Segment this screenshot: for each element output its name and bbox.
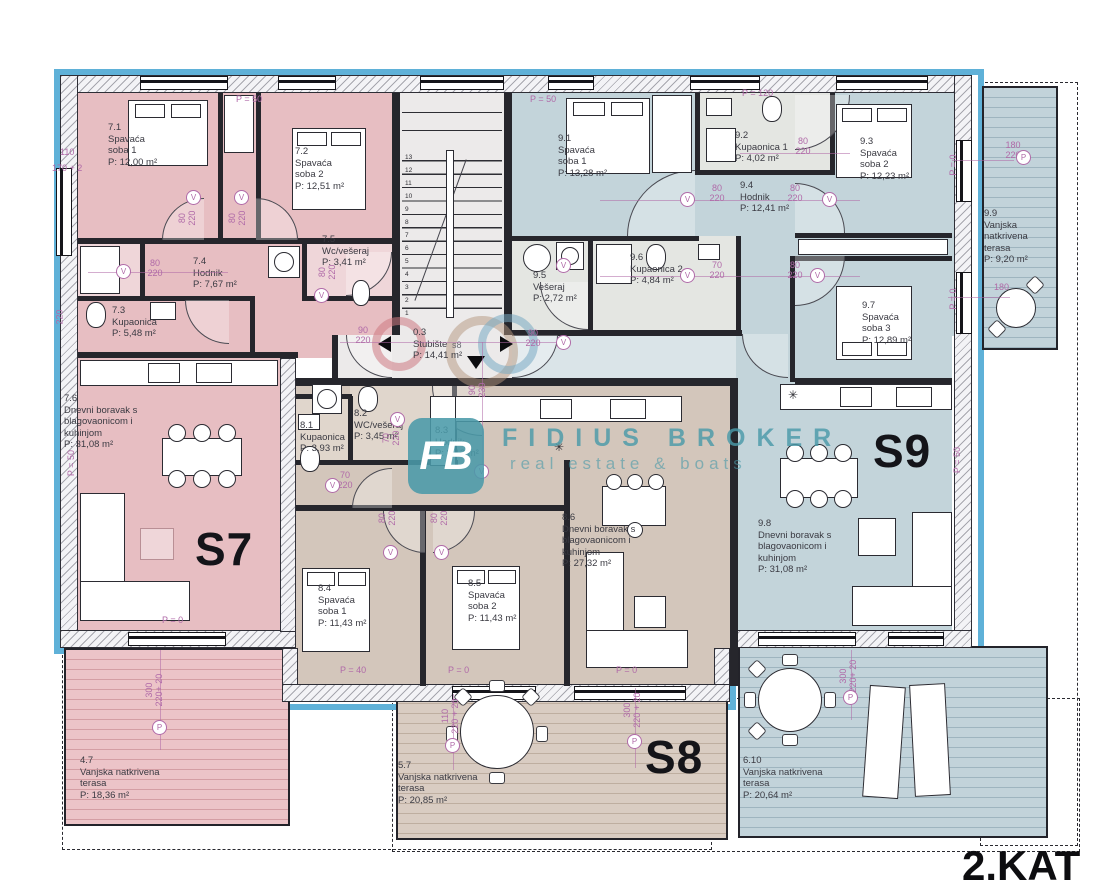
- dim-label: 80 220: [702, 183, 732, 203]
- stair-number: 1: [405, 310, 409, 317]
- terrace-table-6-10: [758, 668, 822, 732]
- wall-7-6-top: [78, 352, 298, 358]
- p-marker: P: [1016, 150, 1031, 165]
- vent-marker: V: [556, 258, 571, 273]
- p-marker: P: [152, 720, 167, 735]
- sofa-9-8-horizontal: [852, 586, 952, 626]
- dim-label: 300 220+ 20: [144, 664, 164, 716]
- stair-number: 11: [405, 180, 412, 187]
- dim-label: 80 220: [140, 258, 170, 278]
- stair-number: 13: [405, 154, 412, 161]
- chair: [648, 474, 664, 490]
- room-label-9-2: 9.2Kupaonica 1P: 4,02 m²: [735, 130, 788, 165]
- vent-marker: V: [234, 190, 249, 205]
- wall-s8-top: [296, 378, 738, 386]
- closet-9-3-9-7: [798, 239, 948, 255]
- dim-label: P = 0: [948, 282, 958, 316]
- coffee-table-8-6: [634, 596, 666, 628]
- room-label-7-4: 7.4HodnikP: 7,67 m²: [193, 256, 237, 291]
- window-top-1: [140, 76, 228, 90]
- wall-9-1-bottom: [512, 236, 699, 241]
- dim-label: 80 220: [177, 203, 197, 233]
- dim-label: 170 + 2: [52, 163, 82, 173]
- dim-label: 80 220: [780, 183, 810, 203]
- vent-marker: V: [116, 264, 131, 279]
- wall-left: [60, 75, 78, 648]
- dim-label: P = 0: [448, 665, 469, 675]
- chair: [193, 470, 211, 488]
- dim-label: P = 50: [530, 94, 556, 104]
- window-bottom-s7: [128, 632, 226, 646]
- terrace-chair: [489, 680, 505, 692]
- wall-7-1-right: [218, 93, 223, 240]
- floor-plan-canvas: 1 2 3 4 5 6 7 8 9 10 11 12 13 s8: [0, 0, 1105, 896]
- dim-label: 80 220: [780, 260, 810, 280]
- terrace-chair: [536, 726, 548, 742]
- room-label-8-4: 8.4Spavaćasoba 1P: 11,43 m²: [318, 583, 366, 629]
- dim-label: 70 220: [702, 260, 732, 280]
- kitchen-stove-9-8: [896, 387, 932, 407]
- terrace-chair: [489, 772, 505, 784]
- room-label-8-1: 8.1KupaonicaP: 3,93 m²: [300, 420, 345, 455]
- washer-drum-7-5: [274, 252, 294, 272]
- vent-marker: V: [680, 192, 695, 207]
- fidius-broker-logo-tagline: real estate & boats: [510, 454, 747, 474]
- p-marker: P: [445, 738, 460, 753]
- wall-9-1-right: [695, 93, 700, 175]
- chair: [627, 474, 643, 490]
- dim-label: P = 0: [616, 665, 637, 675]
- chair: [168, 470, 186, 488]
- dim-label: 110: [60, 147, 74, 157]
- window-top-5: [836, 76, 928, 90]
- terrace-chair: [782, 734, 798, 746]
- shower-9-6: [596, 244, 632, 284]
- terrace-chair: [744, 692, 756, 708]
- dim-label: 90 220: [518, 328, 548, 348]
- wall-9-3-bottom: [795, 233, 952, 238]
- dim-label: P = 0: [162, 615, 183, 625]
- window-bottom-9-8a: [758, 632, 856, 646]
- vent-marker: V: [314, 288, 329, 303]
- wall-s8-left: [282, 648, 298, 688]
- terrace-table-9-9: [996, 288, 1036, 328]
- toilet-9-2: [762, 96, 782, 122]
- dim-label: 80 220: [429, 503, 449, 533]
- dim-label: 90 230: [467, 375, 487, 405]
- room-label-9-5: 9.5VešerajP: 2,72 m²: [533, 270, 577, 305]
- entry-arrow-s9: [500, 336, 513, 352]
- dim-label: 80 220: [227, 203, 247, 233]
- floor-label: 2.KAT: [962, 842, 1080, 890]
- window-right-1: [956, 140, 972, 202]
- vent-marker: V: [383, 545, 398, 560]
- vent-marker: V: [186, 190, 201, 205]
- terrace-chair: [782, 654, 798, 666]
- stair-number: 12: [405, 167, 412, 174]
- window-top-stair: [420, 76, 504, 90]
- p-marker: P: [843, 690, 858, 705]
- window-right-2: [956, 272, 972, 334]
- coffee-table-s7: [140, 528, 174, 560]
- window-left-1: [56, 168, 72, 256]
- chair: [810, 490, 828, 508]
- wall-stair-left: [392, 93, 400, 335]
- dim-label: 90 220: [348, 325, 378, 345]
- stair-number: 8: [405, 219, 409, 226]
- wall-8-5-8-6-divider: [564, 460, 570, 686]
- vent-marker: V: [390, 412, 405, 427]
- dim-label: P = 50: [66, 444, 76, 482]
- lounger-6-10-b: [909, 683, 951, 797]
- stair-number: 2: [405, 297, 409, 304]
- stair-number: 9: [405, 206, 409, 213]
- wall-9-5-9-6-divider: [588, 236, 593, 335]
- room-label-8-5: 8.5Spavaćasoba 2P: 11,43 m²: [468, 578, 516, 624]
- room-label-8-6: 8.6Dnevni boravak sblagovaonicom ikuhinj…: [562, 512, 635, 570]
- washer-9-2: [706, 128, 736, 162]
- dim-label: P = 120: [742, 88, 773, 98]
- wall-s7-s8-divider: [280, 358, 296, 632]
- light-symbol: ✳: [788, 388, 798, 402]
- kitchen-sink-8-6: [540, 399, 572, 419]
- toilet-7-3: [86, 302, 106, 328]
- vent-marker: V: [680, 268, 695, 283]
- wall-vestibule-left: [332, 335, 338, 378]
- wall-7-3-right: [250, 296, 255, 356]
- room-label-9-7: 9.7Spavaćasoba 3P: 12,89 m²: [862, 300, 911, 346]
- closet-9-1: [652, 95, 692, 173]
- room-label-9-8: 9.8Dnevni boravak sblagovaonicom ikuhinj…: [758, 518, 831, 576]
- shower-7-3: [80, 246, 120, 294]
- room-label-7-2: 7.2Spavaćasoba 2P: 12,51 m²: [295, 146, 344, 192]
- kitchen-sink-9-8: [840, 387, 872, 407]
- stair-number: 7: [405, 232, 409, 239]
- room-label-9-1: 9.1Spavaćasoba 1P: 13,28 m²: [558, 133, 607, 179]
- stair-number: 3: [405, 284, 409, 291]
- p-marker: P: [627, 734, 642, 749]
- toilet-7-5: [352, 280, 370, 306]
- washer-drum-8-2: [317, 389, 337, 409]
- room-label-7-3: 7.3KupaonicaP: 5,48 m²: [112, 305, 157, 340]
- room-label-7-6: 7.6Dnevni boravak sblagovaonicom ikuhinj…: [64, 393, 137, 451]
- chair: [218, 470, 236, 488]
- fidius-broker-logo-name: FIDIUS BROKER: [502, 424, 842, 453]
- room-label-stairwell: 0.3StubišteP: 14,41 m²: [413, 327, 462, 362]
- kitchen-stove-8-6: [610, 399, 646, 419]
- terrace-table-5-7: [460, 695, 534, 769]
- room-label-6-10: 6.10Vanjska natkrivenaterasaP: 20,64 m²: [743, 755, 823, 801]
- vent-marker: V: [810, 268, 825, 283]
- coffee-table-9-8: [858, 518, 896, 556]
- dim-label: P = 50: [952, 441, 962, 479]
- dim-label: 110 220 + 20: [440, 690, 460, 742]
- apartment-label-s7: S7: [195, 522, 253, 576]
- entry-arrow-s7: [378, 336, 391, 352]
- wall-s8-right: [714, 648, 730, 688]
- vent-marker: V: [556, 335, 571, 350]
- chair: [834, 490, 852, 508]
- stair-number: 6: [405, 245, 409, 252]
- sink-9-6: [698, 244, 720, 260]
- room-label-9-3: 9.3Spavaćasoba 2P: 12,23 m²: [860, 136, 909, 182]
- dim-label: 80 220: [377, 503, 397, 533]
- wall-9-6-right: [736, 236, 741, 335]
- stair-landing-line-2: [402, 130, 502, 131]
- vent-marker: V: [325, 478, 340, 493]
- chair: [193, 424, 211, 442]
- sink-9-2: [706, 98, 732, 116]
- dim-label: 220: [54, 310, 64, 325]
- dim-label: 70 220: [381, 423, 401, 453]
- chair: [168, 424, 186, 442]
- chair: [218, 424, 236, 442]
- fidius-broker-logo-icon: FB: [408, 418, 484, 494]
- kitchen-stove-s7: [196, 363, 232, 383]
- dim-label: P = 40: [340, 665, 366, 675]
- apartment-label-s8: S8: [645, 730, 703, 784]
- kitchen-sink-s7: [148, 363, 180, 383]
- room-label-4-7: 4.7Vanjska natkrivenaterasaP: 18,36 m²: [80, 755, 160, 801]
- dim-label: 180: [994, 282, 1009, 292]
- vent-marker: V: [434, 545, 449, 560]
- vent-marker: V: [822, 192, 837, 207]
- dim-label: 300 220 + 20: [622, 684, 642, 736]
- window-top-2: [278, 76, 336, 90]
- basin-9-5: [523, 244, 551, 272]
- room-label-9-9: 9.9VanjskanatkrivenaterasaP: 9,20 m²: [984, 208, 1028, 266]
- wall-7-5-left: [302, 238, 307, 301]
- sofa-8-6-horizontal: [586, 630, 688, 668]
- stair-number: 10: [405, 193, 412, 200]
- room-label-5-7: 5.7Vanjska natkrivenaterasaP: 20,85 m²: [398, 760, 478, 806]
- room-label-9-6: 9.6Kupaonica 2P: 4,84 m²: [630, 252, 683, 287]
- dim-label: P = 0: [948, 148, 958, 182]
- window-bottom-9-8b: [888, 632, 944, 646]
- window-top-3: [548, 76, 594, 90]
- stair-stringer: [446, 150, 454, 318]
- stair-number: 4: [405, 271, 409, 278]
- wall-9-2-bottom: [695, 170, 835, 175]
- wall-8-1-right: [348, 396, 353, 464]
- chair: [606, 474, 622, 490]
- dim-label: 80 220: [317, 257, 337, 287]
- apartment-label-s9: S9: [873, 424, 931, 478]
- chair: [786, 490, 804, 508]
- room-label-7-1: 7.1Spavaćasoba 1P: 12,00 m²: [108, 122, 157, 168]
- stair-number: 5: [405, 258, 409, 265]
- wall-stair-right: [504, 93, 512, 335]
- terrace-chair: [824, 692, 836, 708]
- dim-label: 80 220: [788, 136, 818, 156]
- stair-landing-line-1: [402, 112, 502, 113]
- dim-label: P = 50: [236, 94, 262, 104]
